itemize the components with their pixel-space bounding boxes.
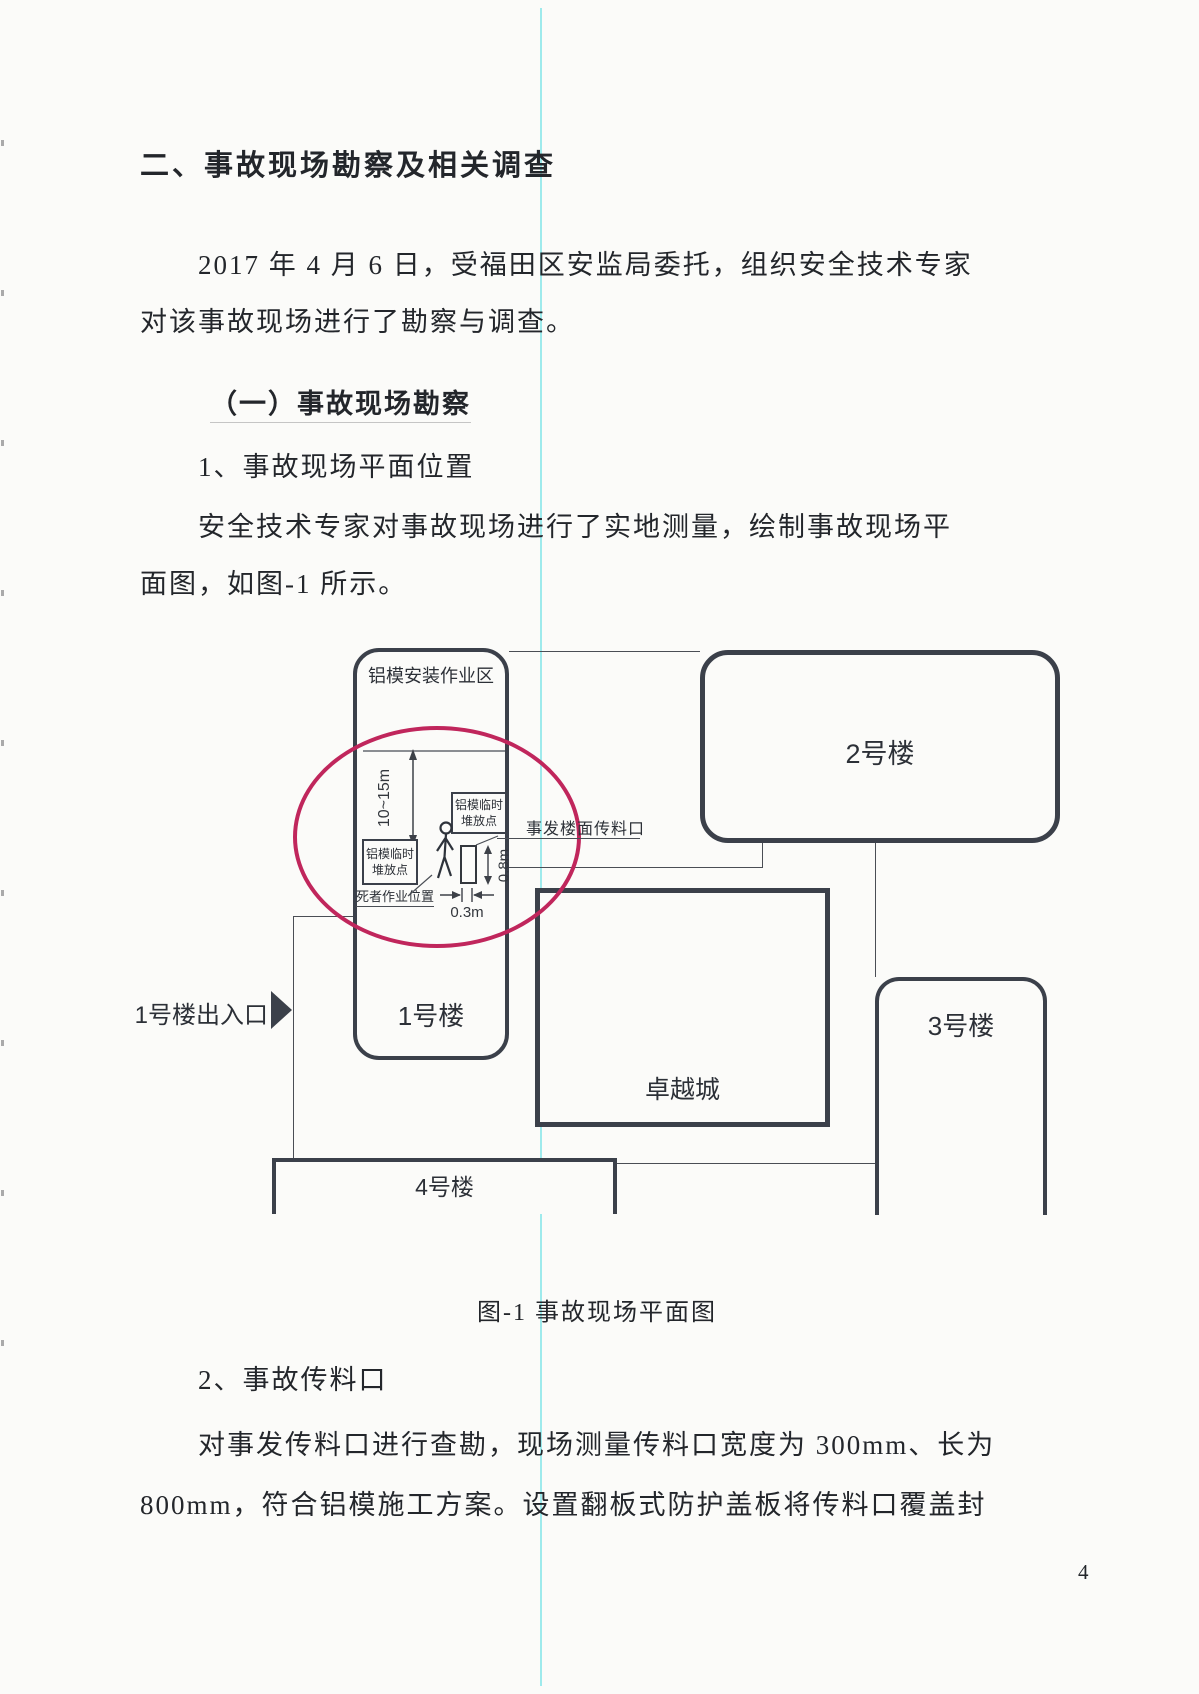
list-item-1: 1、事故现场平面位置 bbox=[198, 445, 475, 484]
section-heading: 二、事故现场勘察及相关调查 bbox=[140, 142, 556, 184]
paragraph-line: 对该事故现场进行了勘察与调查。 bbox=[140, 300, 575, 339]
paragraph-line: 2017 年 4 月 6 日，受福田区安监局委托，组织安全技术专家 bbox=[198, 243, 973, 282]
entrance-arrow-icon bbox=[271, 991, 292, 1029]
dimension-arrow-03 bbox=[438, 888, 496, 903]
victim-position-label: 死者作业位置 bbox=[356, 886, 434, 907]
work-area-label: 铝模安装作业区 bbox=[355, 662, 507, 688]
entrance-label: 1号楼出入口 bbox=[110, 995, 268, 1030]
transfer-opening-label: 事发楼面传料口 bbox=[526, 815, 645, 839]
zhuoyue-city-label: 卓越城 bbox=[535, 1070, 830, 1106]
building-2-outline bbox=[700, 650, 1060, 843]
building-1-label: 1号楼 bbox=[353, 996, 509, 1033]
building-1-outline bbox=[353, 648, 509, 1060]
opening-label-underline bbox=[497, 838, 640, 839]
page-number: 4 bbox=[1078, 1560, 1089, 1585]
paragraph-line: 800mm，符合铝模施工方案。设置翻板式防护盖板将传料口覆盖封 bbox=[140, 1483, 987, 1522]
building-4-label: 4号楼 bbox=[272, 1168, 617, 1202]
stack-point-text: 堆放点 bbox=[372, 863, 408, 877]
entrance-path-vertical bbox=[293, 916, 294, 1158]
subsection-heading-text: （一）事故现场勘察 bbox=[210, 389, 471, 423]
document-page: 二、事故现场勘察及相关调查 2017 年 4 月 6 日，受福田区安监局委托，组… bbox=[0, 0, 1199, 1694]
building-2-label: 2号楼 bbox=[700, 732, 1060, 771]
dimension-arrow-vertical bbox=[405, 749, 421, 846]
scan-artifact-marks bbox=[1, 140, 4, 1420]
entrance-path-horizontal bbox=[293, 916, 353, 917]
paragraph-line: 对事发传料口进行查勘，现场测量传料口宽度为 300mm、长为 bbox=[198, 1423, 995, 1462]
connector-jog-vertical bbox=[762, 843, 763, 868]
dimension-label-gap: 0.3m bbox=[438, 904, 496, 921]
transfer-opening-rect bbox=[460, 845, 477, 884]
victim-leader-line bbox=[406, 872, 434, 898]
connector-line-top bbox=[509, 651, 700, 652]
connector-b4-b3 bbox=[617, 1163, 875, 1164]
paragraph-line: 面图，如图-1 所示。 bbox=[140, 562, 407, 601]
opening-leader-line bbox=[474, 834, 500, 847]
accident-highlight-circle bbox=[293, 726, 581, 948]
stack-point-text: 铝模临时 bbox=[455, 798, 503, 812]
dimension-label-opening: 0.8m bbox=[496, 846, 513, 886]
stack-point-box-right: 铝模临时 堆放点 bbox=[451, 792, 507, 834]
list-item-2: 2、事故传料口 bbox=[198, 1358, 388, 1397]
paragraph-line: 安全技术专家对事故现场进行了实地测量，绘制事故现场平 bbox=[198, 505, 952, 544]
floor-edge-line bbox=[363, 750, 505, 752]
subsection-heading: （一）事故现场勘察 bbox=[210, 382, 471, 421]
dimension-label-height: 10~15m bbox=[376, 766, 394, 830]
building-4-outline bbox=[272, 1158, 617, 1214]
stack-point-text: 堆放点 bbox=[461, 814, 497, 828]
zhuoyue-city-outline bbox=[535, 888, 830, 1127]
dimension-arrow-08 bbox=[481, 845, 495, 885]
connector-jog-horizontal bbox=[509, 867, 763, 868]
stack-point-text: 铝模临时 bbox=[366, 847, 414, 861]
building-3-outline bbox=[875, 977, 1047, 1215]
figure-caption: 图-1 事故现场平面图 bbox=[397, 1292, 797, 1327]
person-icon bbox=[428, 820, 464, 882]
building-3-label: 3号楼 bbox=[875, 1006, 1047, 1043]
connector-b2-b3 bbox=[875, 843, 876, 977]
stack-point-box-left: 铝模临时 堆放点 bbox=[362, 839, 418, 885]
